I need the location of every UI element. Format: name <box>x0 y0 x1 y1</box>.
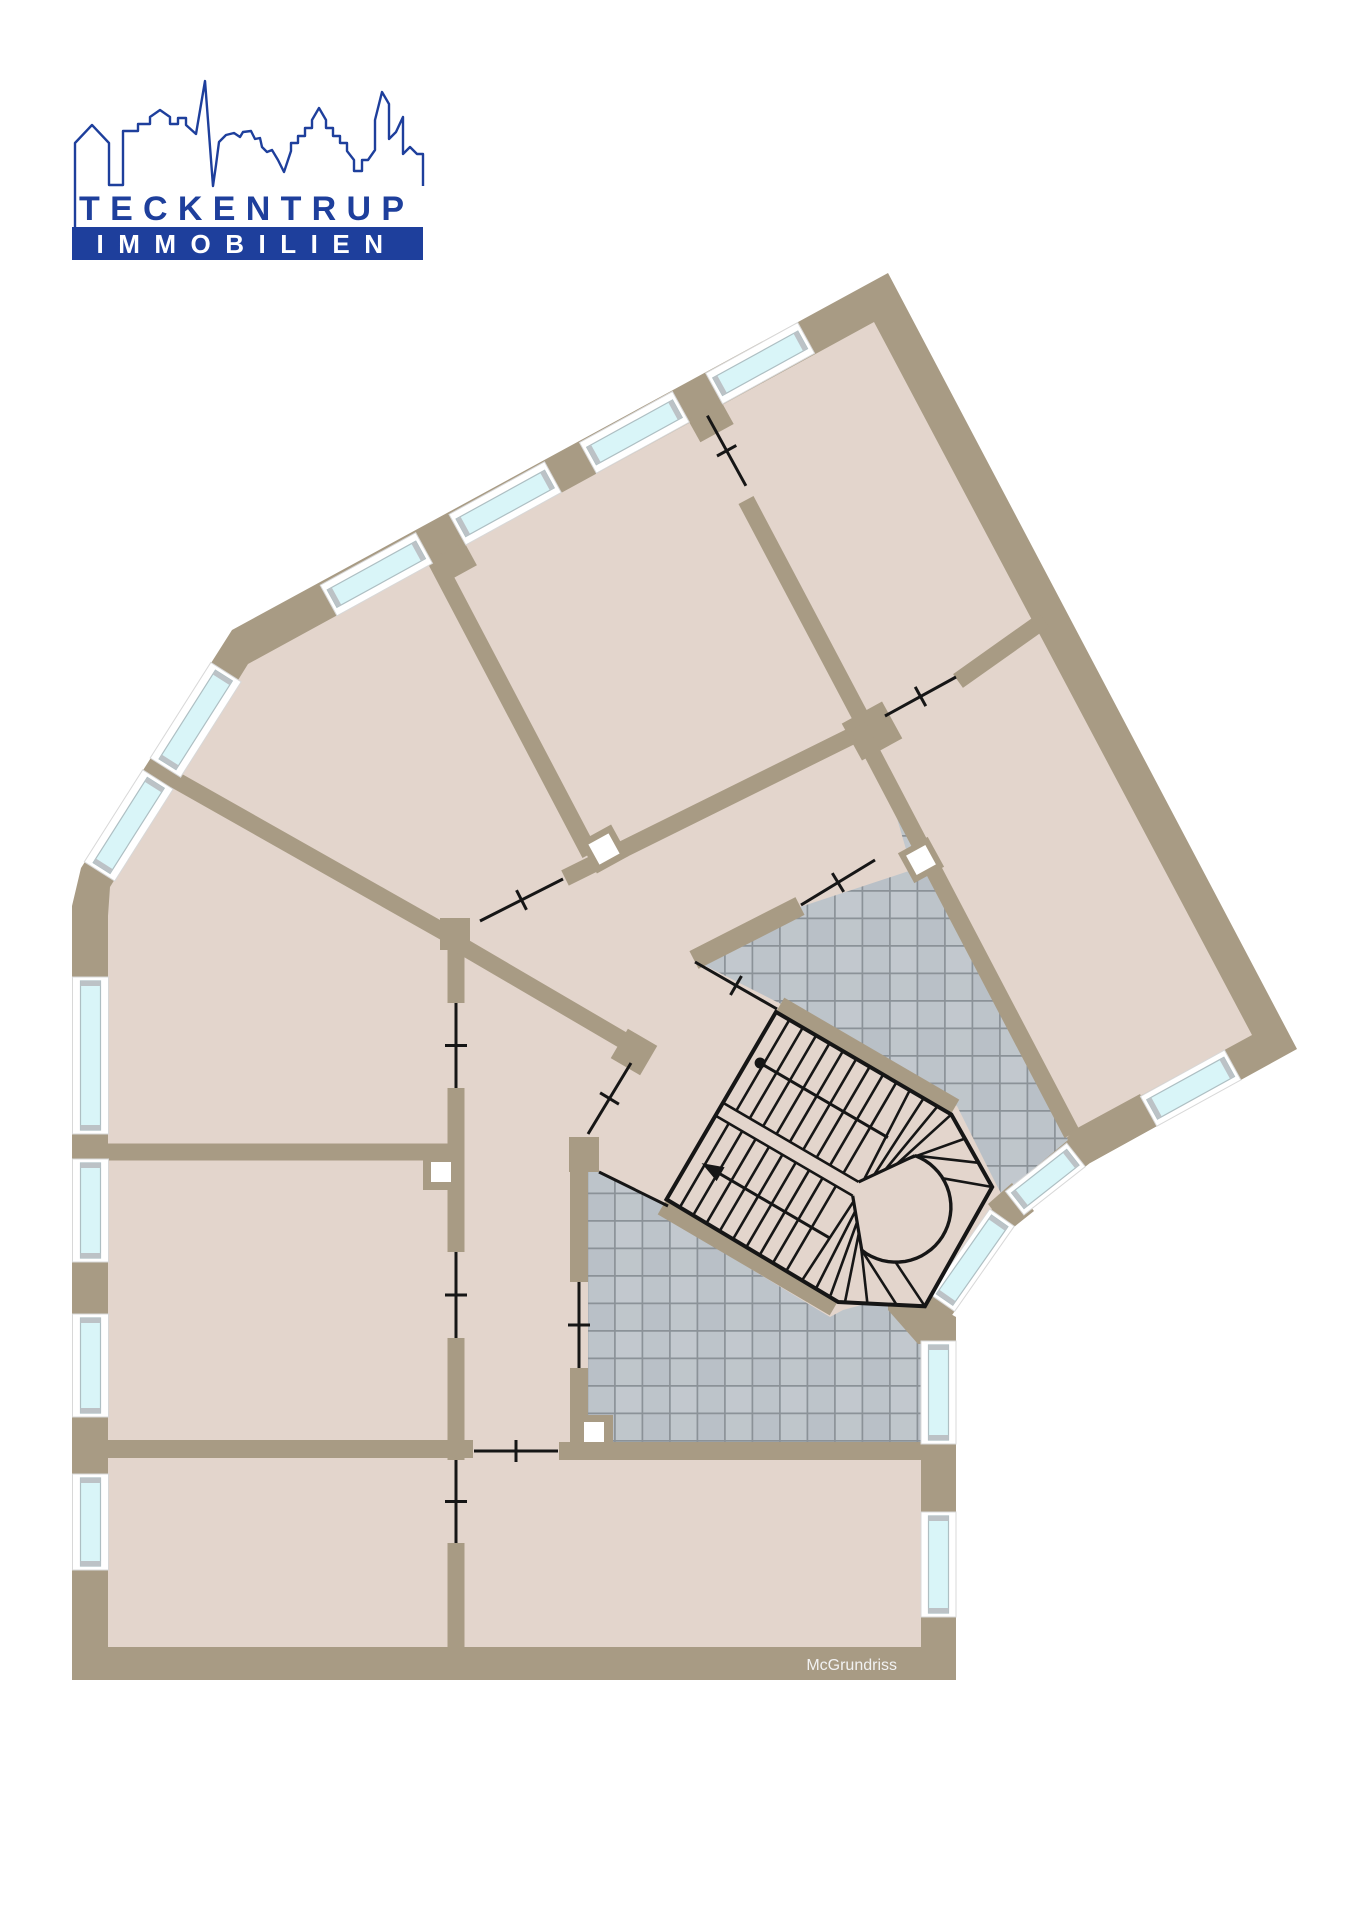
svg-text:McGrundriss: McGrundriss <box>806 1657 897 1674</box>
svg-text:TECKENTRUP: TECKENTRUP <box>79 190 414 228</box>
svg-text:IMMOBILIEN: IMMOBILIEN <box>97 229 398 259</box>
